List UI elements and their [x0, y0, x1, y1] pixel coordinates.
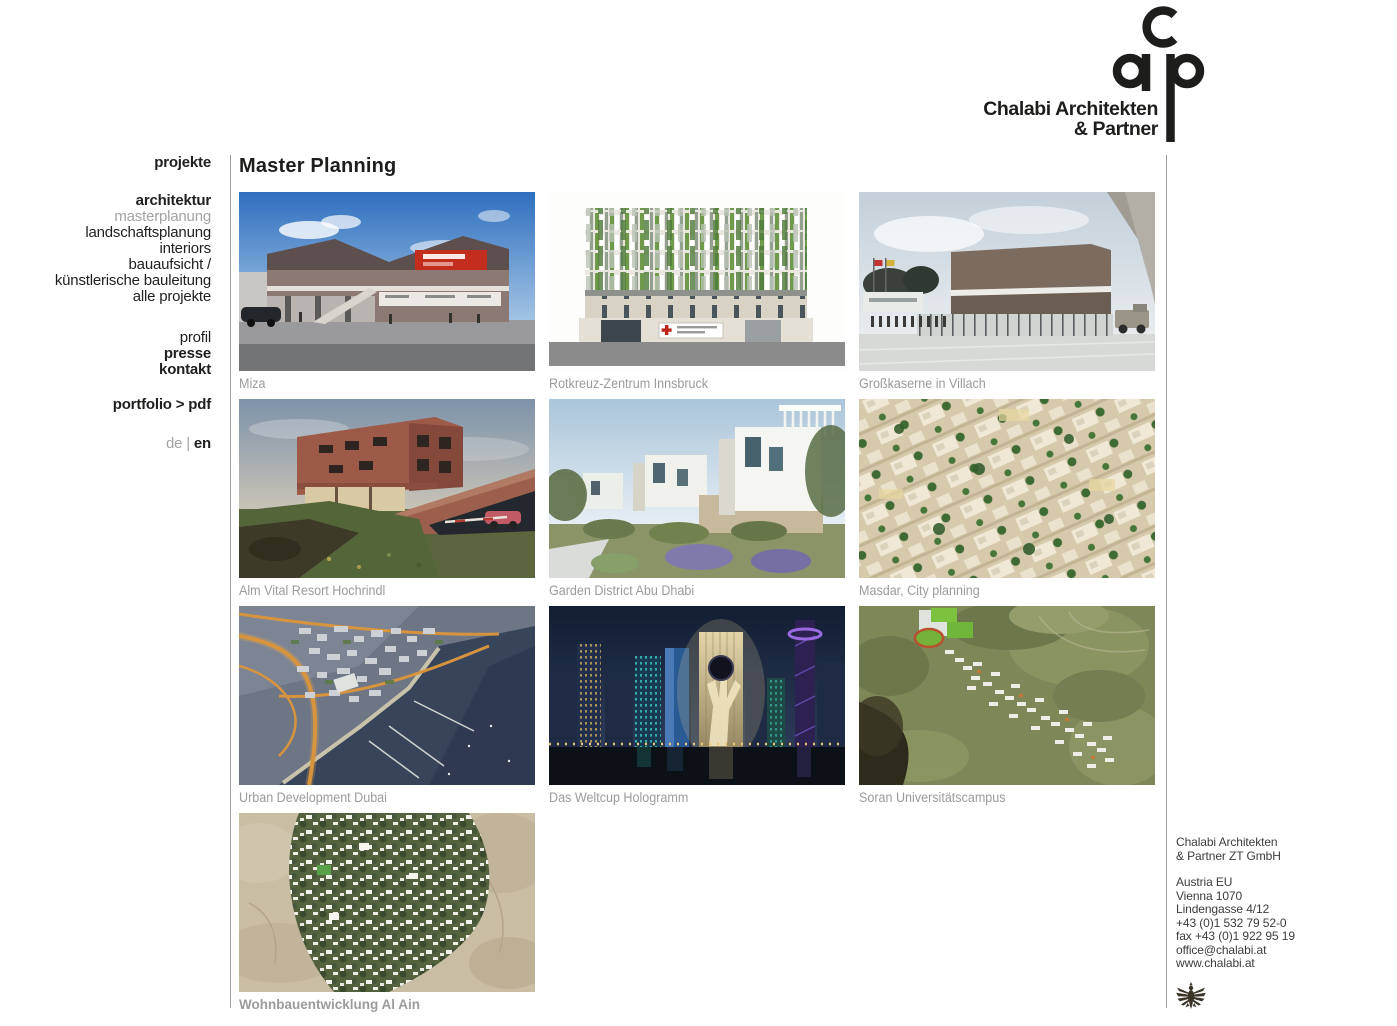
brand-line2: & Partner [900, 119, 1158, 139]
brand-wordmark[interactable]: Chalabi Architekten & Partner [900, 99, 1158, 139]
nav-portfolio-pdf[interactable]: portfolio > pdf [0, 397, 211, 413]
contact-website-link[interactable]: www.chalabi.at [1176, 957, 1295, 971]
dubai-thumbnail-image[interactable] [239, 606, 535, 785]
nav-bauaufsicht[interactable]: bauaufsicht / [0, 257, 211, 273]
contact-address: Austria EU Vienna 1070 Lindengasse 4/12 … [1176, 876, 1295, 971]
alm-vital-thumbnail-image[interactable] [239, 399, 535, 578]
portfolio-pdf-label: pdf [188, 396, 211, 413]
project-caption[interactable]: Rotkreuz-Zentrum Innsbruck [549, 376, 824, 393]
al-ain-thumbnail-image[interactable] [239, 813, 535, 992]
nav-interiors[interactable]: interiors [0, 241, 211, 257]
nav-masterplanung-active[interactable]: masterplanung [0, 209, 211, 225]
lang-separator: | [186, 435, 190, 452]
brand-line1: Chalabi Architekten [900, 99, 1158, 119]
nav-profil[interactable]: profil [0, 330, 211, 346]
contact-street: Lindengasse 4/12 [1176, 903, 1295, 917]
grosskaserne-thumbnail-image[interactable] [859, 192, 1155, 371]
project-weltcup-hologramm[interactable]: Das Weltcup Hologramm [549, 606, 845, 807]
project-urban-development-dubai[interactable]: Urban Development Dubai [239, 606, 535, 807]
project-al-ain[interactable]: Wohnbauentwicklung Al Ain [239, 813, 535, 1014]
contact-company-line2: & Partner ZT GmbH [1176, 850, 1295, 864]
contact-country: Austria EU [1176, 876, 1295, 890]
project-caption[interactable]: Miza [239, 376, 514, 393]
project-caption[interactable]: Urban Development Dubai [239, 790, 514, 807]
nav-landschaftsplanung[interactable]: landschaftsplanung [0, 225, 211, 241]
project-caption[interactable]: Großkaserne in Villach [859, 376, 1134, 393]
chevron-right-icon: > [176, 396, 185, 413]
project-caption[interactable]: Masdar, City planning [859, 583, 1134, 600]
nav-architektur[interactable]: architektur [0, 193, 211, 209]
project-grosskaserne[interactable]: Großkaserne in Villach [859, 192, 1155, 393]
contact-block: Chalabi Architekten & Partner ZT GmbH Au… [1176, 836, 1295, 971]
weltcup-thumbnail-image[interactable] [549, 606, 845, 785]
contact-company-line1: Chalabi Architekten [1176, 836, 1295, 850]
nav-alle-projekte[interactable]: alle projekte [0, 289, 211, 305]
contact-city: Vienna 1070 [1176, 890, 1295, 904]
sidebar-nav: projekte architektur masterplanung lands… [0, 155, 211, 452]
lang-en-active[interactable]: en [194, 435, 211, 452]
nav-presse[interactable]: presse [0, 346, 211, 362]
language-switch: de | en [0, 436, 211, 452]
nav-kuenstlerische-bauleitung[interactable]: künstlerische bauleitung [0, 273, 211, 289]
project-grid: Miza [239, 192, 1155, 1014]
masdar-thumbnail-image[interactable] [859, 399, 1155, 578]
right-divider-line [1166, 155, 1167, 1008]
nav-projekte[interactable]: projekte [0, 155, 211, 171]
page-title: Master Planning [239, 155, 396, 178]
contact-email-link[interactable]: office@chalabi.at [1176, 944, 1295, 958]
left-divider-line [230, 155, 231, 1008]
project-caption[interactable]: Soran Universitätscampus [859, 790, 1134, 807]
rotkreuz-thumbnail-image[interactable] [549, 192, 845, 371]
project-masdar[interactable]: Masdar, City planning [859, 399, 1155, 600]
contact-phone: +43 (0)1 532 79 52-0 [1176, 917, 1295, 931]
project-caption[interactable]: Das Weltcup Hologramm [549, 790, 824, 807]
page: Chalabi Architekten & Partner projekte a… [0, 0, 1397, 1026]
project-caption[interactable]: Wohnbauentwicklung Al Ain [239, 997, 535, 1014]
project-soran-campus[interactable]: Soran Universitätscampus [859, 606, 1155, 807]
project-alm-vital[interactable]: Alm Vital Resort Hochrindl [239, 399, 535, 600]
project-rotkreuz-zentrum[interactable]: Rotkreuz-Zentrum Innsbruck [549, 192, 845, 393]
garden-district-thumbnail-image[interactable] [549, 399, 845, 578]
lang-de[interactable]: de [166, 435, 182, 452]
project-caption[interactable]: Garden District Abu Dhabi [549, 583, 824, 600]
portfolio-label: portfolio [113, 396, 172, 413]
nav-kontakt[interactable]: kontakt [0, 362, 211, 378]
soran-thumbnail-image[interactable] [859, 606, 1155, 785]
miza-thumbnail-image[interactable] [239, 192, 535, 371]
project-miza[interactable]: Miza [239, 192, 535, 393]
austrian-eagle-icon [1176, 981, 1206, 1010]
contact-fax: fax +43 (0)1 922 95 19 [1176, 930, 1295, 944]
project-caption[interactable]: Alm Vital Resort Hochrindl [239, 583, 514, 600]
project-garden-district[interactable]: Garden District Abu Dhabi [549, 399, 845, 600]
